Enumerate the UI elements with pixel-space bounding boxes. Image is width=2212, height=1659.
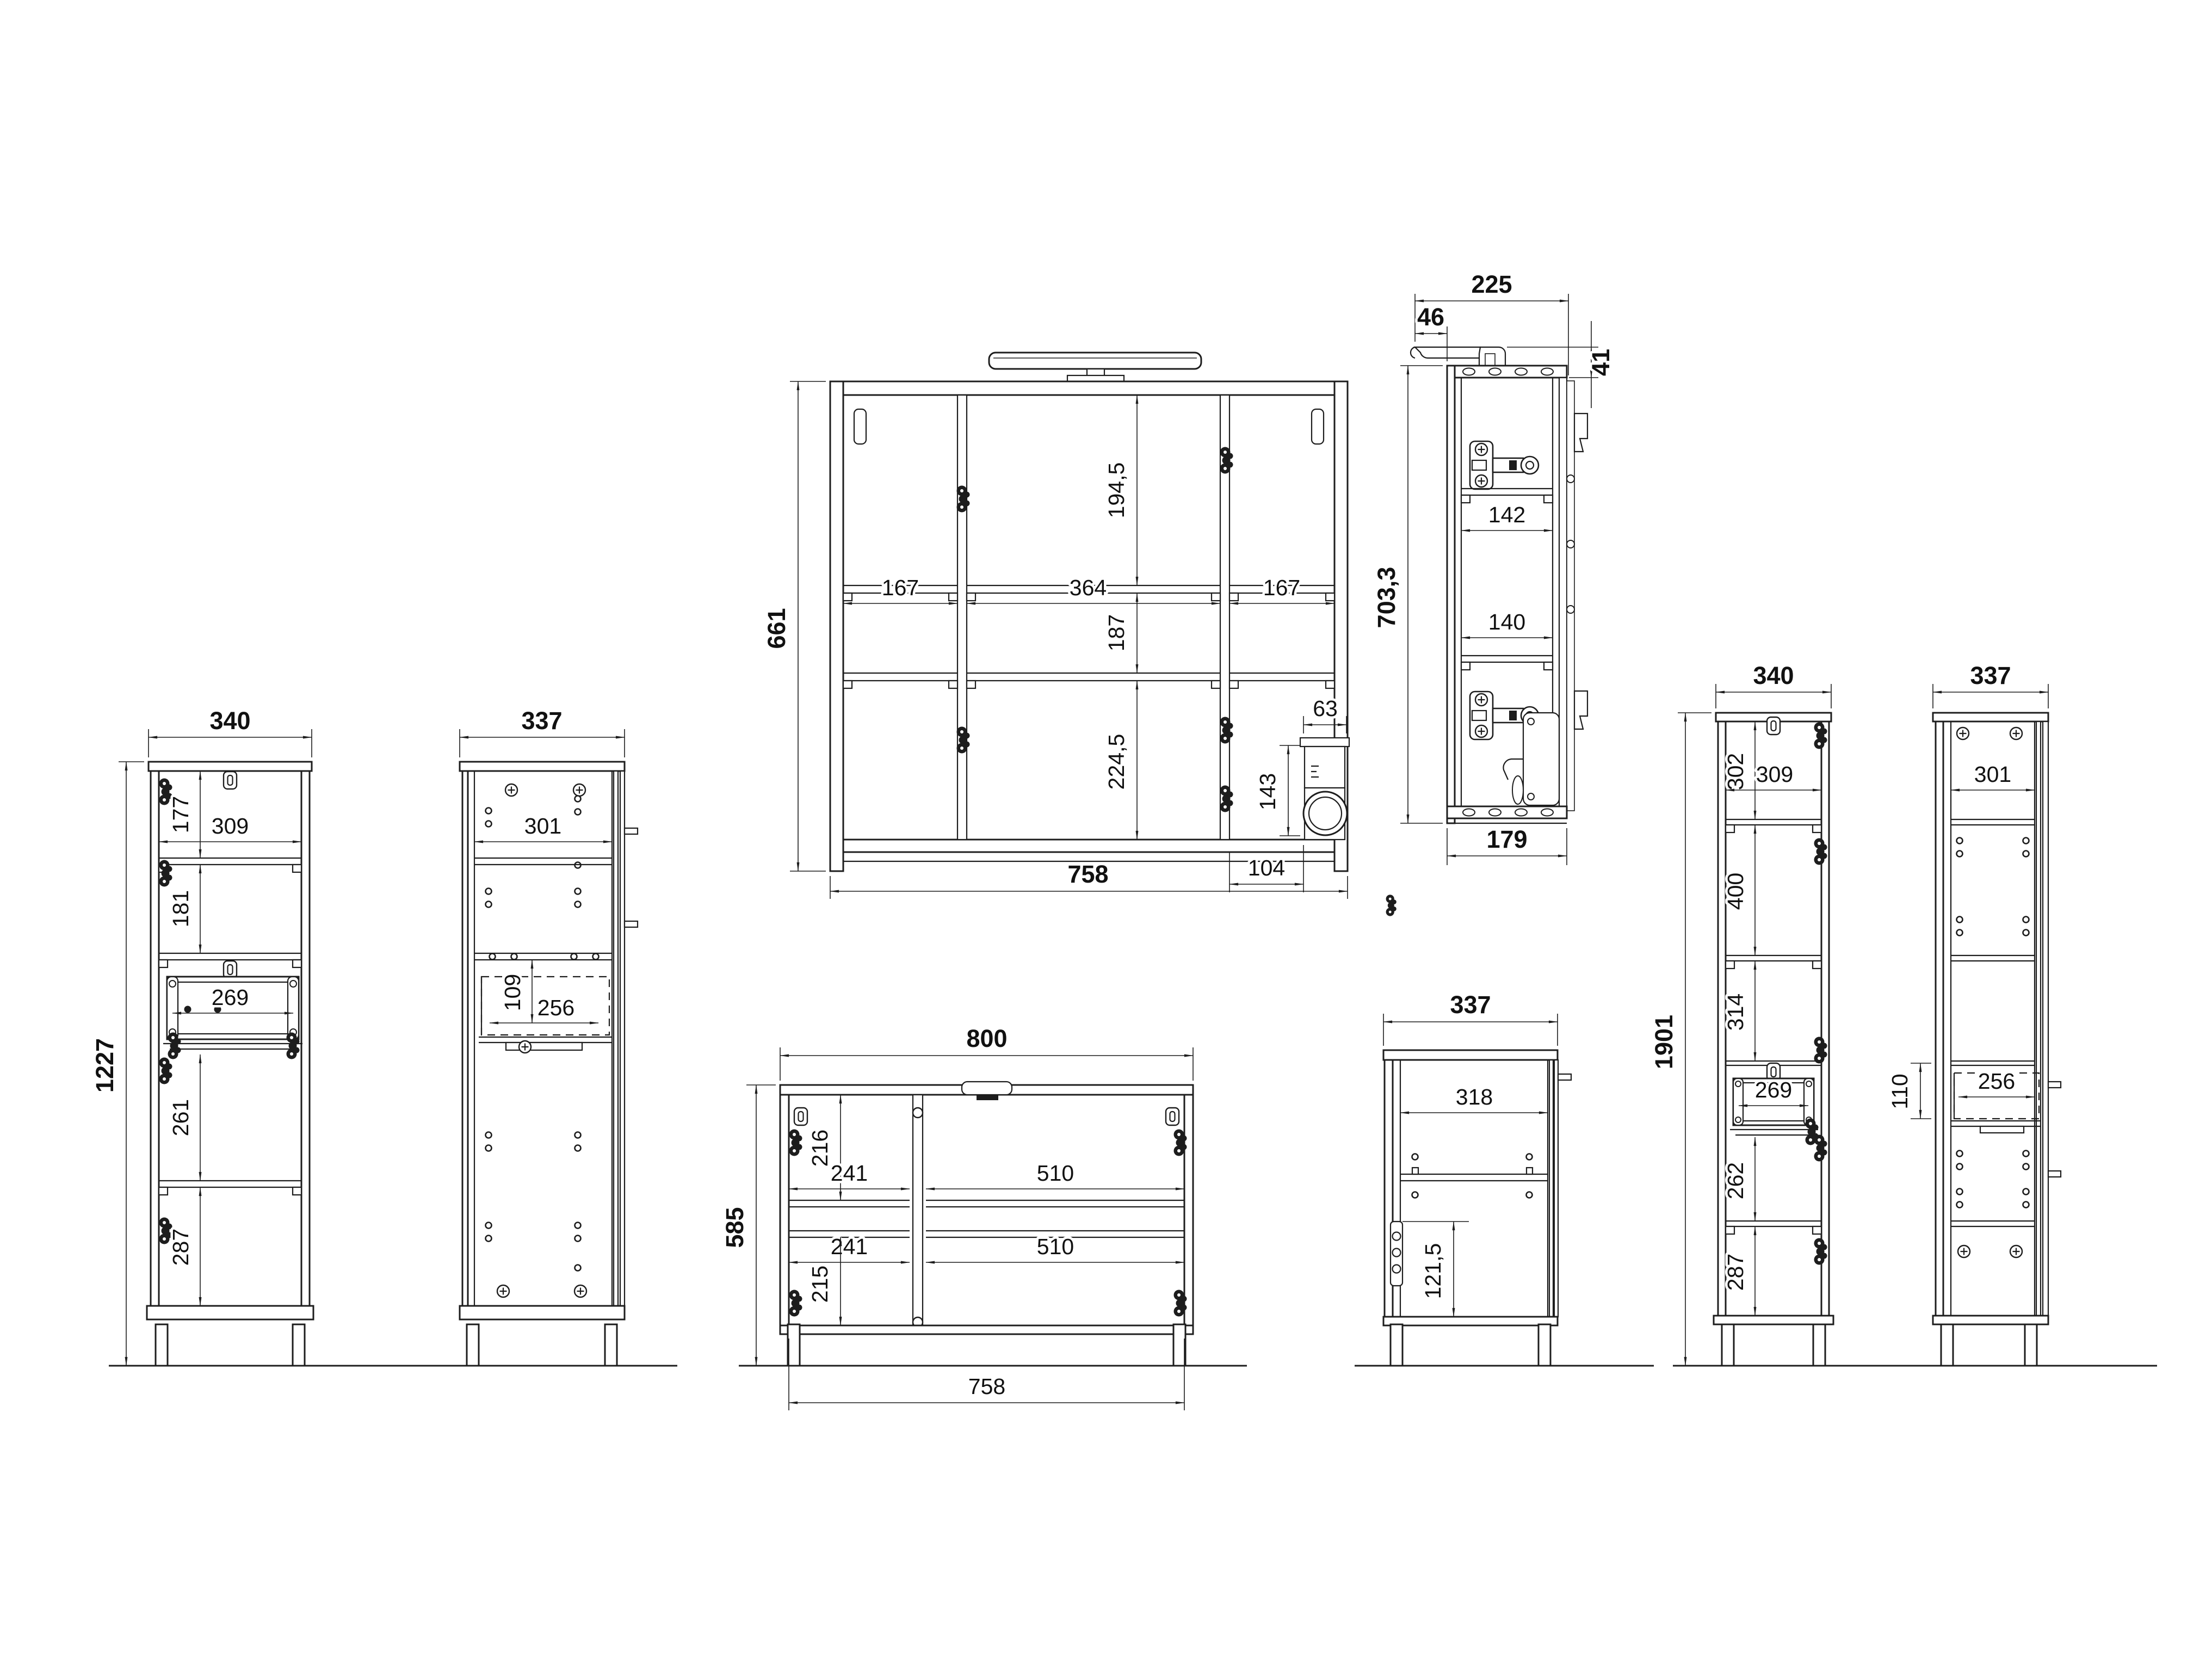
dim-167-right: 167: [1263, 575, 1300, 600]
dim-661: 661: [763, 608, 790, 649]
dim-758: 758: [1067, 860, 1108, 888]
dim-301-right: 301: [1974, 762, 2011, 787]
dim-340-right: 340: [1753, 662, 1794, 689]
dim-314: 314: [1723, 994, 1748, 1031]
technical-drawing: 340 1227 177 309 181 269 261 287: [0, 0, 2212, 1659]
dim-109: 109: [500, 974, 525, 1011]
dim-225: 225: [1471, 270, 1512, 298]
dim-181: 181: [168, 890, 193, 927]
dim-140: 140: [1488, 609, 1525, 634]
dim-256-right: 256: [1978, 1069, 2015, 1094]
dim-241-lower: 241: [831, 1234, 868, 1259]
dim-301: 301: [524, 813, 561, 838]
dim-269: 269: [212, 985, 249, 1010]
dim-104: 104: [1248, 855, 1285, 880]
dim-224-5: 224,5: [1104, 734, 1129, 790]
dim-width-340: 340: [209, 707, 250, 735]
dim-287-right: 287: [1723, 1254, 1748, 1291]
wall-bracket: [1391, 1222, 1402, 1286]
dim-585: 585: [721, 1207, 749, 1248]
dim-256: 256: [537, 995, 574, 1020]
drawing-page: 340 1227 177 309 181 269 261 287: [0, 0, 2212, 1659]
dim-261: 261: [168, 1099, 193, 1136]
dim-287: 287: [168, 1229, 193, 1266]
dim-703-3: 703,3: [1373, 567, 1400, 628]
dim-179: 179: [1486, 825, 1527, 853]
dim-302: 302: [1723, 753, 1748, 790]
dim-758-inner: 758: [968, 1374, 1005, 1399]
dim-46: 46: [1417, 303, 1444, 331]
dim-143: 143: [1255, 773, 1280, 810]
dim-121-5: 121,5: [1420, 1243, 1445, 1299]
dim-41: 41: [1587, 349, 1615, 376]
dim-1901: 1901: [1650, 1015, 1678, 1069]
dim-241-upper: 241: [831, 1161, 868, 1186]
socket-unit: [1300, 738, 1349, 840]
dim-510-upper: 510: [1037, 1161, 1074, 1186]
dim-262: 262: [1723, 1162, 1748, 1199]
dim-height-1227: 1227: [91, 1038, 119, 1093]
dim-194-5: 194,5: [1104, 462, 1129, 519]
dim-800: 800: [966, 1025, 1007, 1052]
dim-269-right: 269: [1755, 1077, 1792, 1102]
dim-110: 110: [1887, 1074, 1912, 1109]
dim-187: 187: [1104, 614, 1129, 651]
dim-309-right: 309: [1756, 762, 1793, 787]
dim-318: 318: [1456, 1084, 1493, 1109]
dim-142: 142: [1488, 502, 1525, 527]
dim-510-lower: 510: [1037, 1234, 1074, 1259]
dim-364: 364: [1070, 575, 1107, 600]
dim-215: 215: [807, 1266, 832, 1303]
dim-337-vanity: 337: [1450, 991, 1491, 1019]
dim-width-337: 337: [521, 707, 562, 735]
dim-167-left: 167: [882, 575, 919, 600]
dim-216: 216: [807, 1130, 832, 1167]
dim-337-right: 337: [1970, 662, 2011, 689]
dim-63: 63: [1313, 696, 1338, 721]
dim-177: 177: [168, 796, 193, 833]
dim-400: 400: [1723, 873, 1748, 910]
dim-309: 309: [212, 813, 249, 838]
